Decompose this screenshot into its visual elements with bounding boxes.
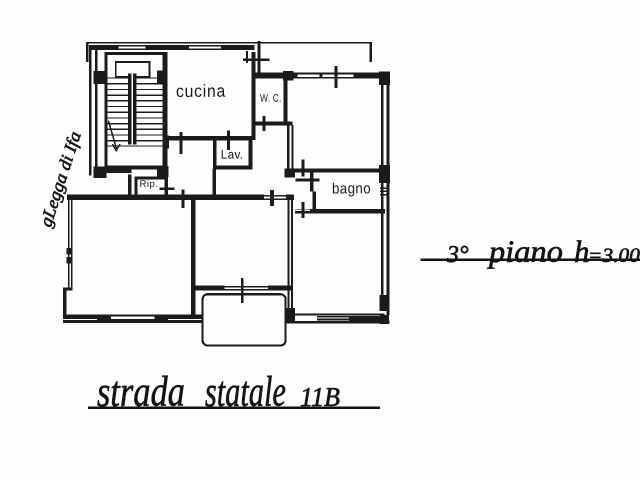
svg-text:strada: strada — [97, 368, 185, 416]
svg-text:statale: statale — [205, 368, 286, 416]
svg-text:3°: 3° — [446, 242, 469, 268]
svg-text:=3.00: =3.00 — [588, 245, 640, 267]
svg-text:11B: 11B — [300, 382, 340, 412]
svg-text:Rip.: Rip. — [139, 179, 158, 190]
svg-text:cucina: cucina — [176, 81, 226, 101]
svg-text:bagno: bagno — [332, 180, 371, 197]
svg-text:piano: piano — [487, 233, 563, 269]
svg-text:W. C.: W. C. — [260, 93, 282, 105]
svg-text:Lav.: Lav. — [221, 148, 244, 162]
